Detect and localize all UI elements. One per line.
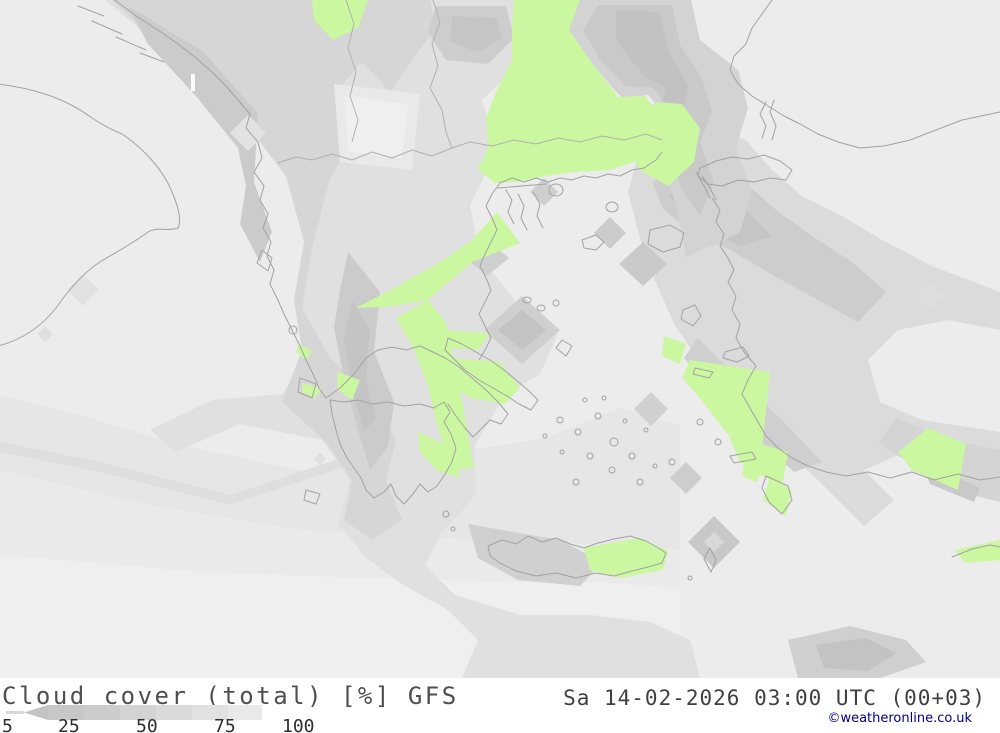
- model-label: GFS: [408, 682, 459, 710]
- color-scale-bar: [0, 698, 320, 728]
- weather-map: [0, 0, 1000, 678]
- scale-arrowhead: [24, 705, 48, 720]
- scale-tick-75: 75: [214, 716, 236, 733]
- weather-map-page: Cloud cover (total) [%]GFS Sa 14-02-2026…: [0, 0, 1000, 733]
- datetime-label: Sa 14-02-2026 03:00 UTC (00+03): [563, 686, 986, 710]
- scale-tick-5: 5: [2, 716, 13, 733]
- scale-tick-100: 100: [282, 716, 315, 733]
- scale-tail: [6, 711, 24, 714]
- scale-tick-50: 50: [136, 716, 158, 733]
- copyright-label: ©weatheronline.co.uk: [827, 711, 972, 726]
- scale-tick-25: 25: [58, 716, 80, 733]
